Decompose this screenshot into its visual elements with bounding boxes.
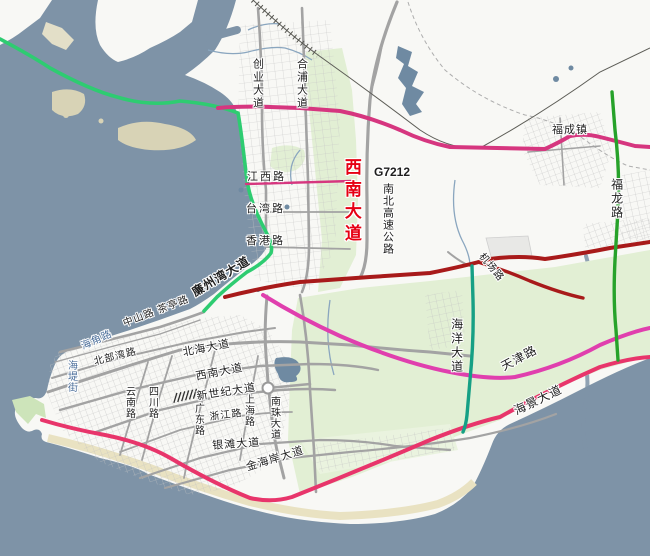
road-label-nanbei-gaosu: 南北高速公路 bbox=[381, 183, 393, 255]
road-label-yunnan-lu: 云南路 bbox=[123, 386, 134, 419]
road-label-nanzhu-dadao: 南珠大道 bbox=[268, 396, 279, 440]
road-label-fulong-lu: 福龙路 bbox=[610, 178, 623, 220]
road-label-shanghai-lu: 上海路 bbox=[242, 394, 253, 427]
map-graphics bbox=[0, 0, 650, 556]
town-label-fucheng-zhen: 福成镇 bbox=[552, 125, 588, 137]
map-canvas: 创业大道 合浦大道 江西路 台湾路 香港路 西南大道 G7212 南北高速公路 … bbox=[0, 0, 650, 556]
road-label-xianggang-lu: 香港路 bbox=[246, 236, 285, 248]
road-label-chuangye-dadao: 创业大道 bbox=[251, 58, 263, 110]
highway-label-g7212: G7212 bbox=[374, 166, 410, 179]
road-label-sichuan-lu: 四川路 bbox=[146, 386, 157, 419]
road-label-haidi-jie: 海堤街 bbox=[65, 360, 76, 393]
road-label-taiwan-lu: 台湾路 bbox=[246, 204, 285, 216]
road-label-hepu-dadao: 合浦大道 bbox=[295, 58, 307, 110]
road-label-haiyang-dadao: 海洋大道 bbox=[450, 318, 463, 374]
road-label-xinan-dadao-red: 西南大道 bbox=[342, 158, 360, 246]
roundabout bbox=[263, 383, 274, 394]
road-label-jiangxi-lu: 江西路 bbox=[247, 172, 286, 184]
road-label-guangdong-lu: 广东路 bbox=[192, 403, 203, 436]
